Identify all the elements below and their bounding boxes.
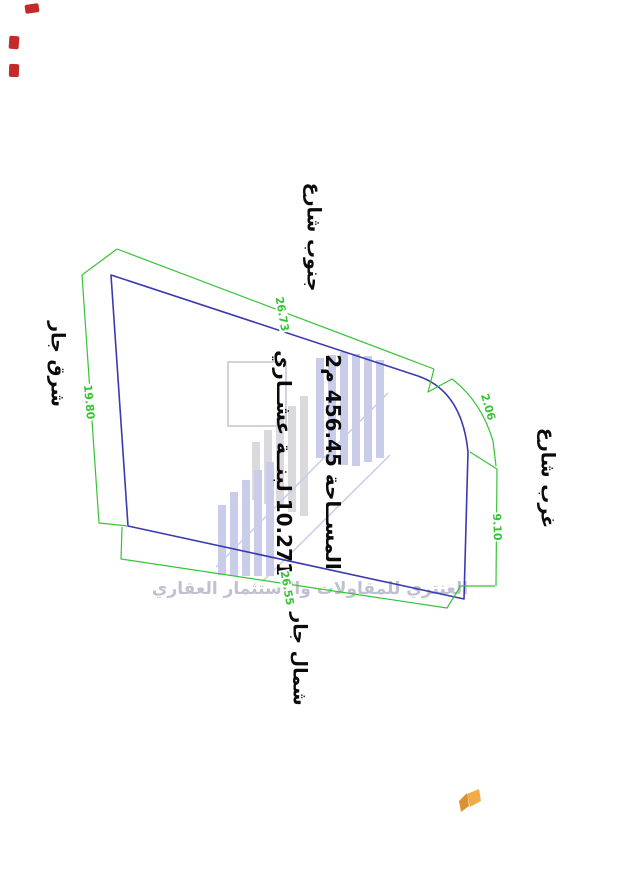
red-pen-mark-1	[24, 3, 39, 14]
red-pen-mark-2	[9, 36, 20, 50]
parcel-unit-text: 10.271 لبنــة عشــاري	[274, 350, 294, 576]
dimension-west-edge: 9.10	[491, 512, 503, 542]
south-boundary-label: جنوب شارع	[304, 183, 323, 292]
butterfly-icon	[450, 783, 490, 819]
survey-sketch-page: العنتري للمقاولات والاستثمار العقاري جنو…	[0, 0, 620, 876]
north-boundary-label: شمال جار	[290, 612, 309, 705]
east-boundary-label: شرق جار	[48, 321, 67, 407]
butterfly-right-wing	[467, 789, 481, 807]
parcel-area-text: المســاحة 456.45 م2	[323, 354, 343, 570]
dimension-east-edge: 19.80	[82, 383, 96, 421]
red-pen-mark-3	[9, 64, 19, 77]
west-boundary-label: غرب شارع	[538, 428, 557, 528]
parcel-drawing	[0, 0, 620, 876]
